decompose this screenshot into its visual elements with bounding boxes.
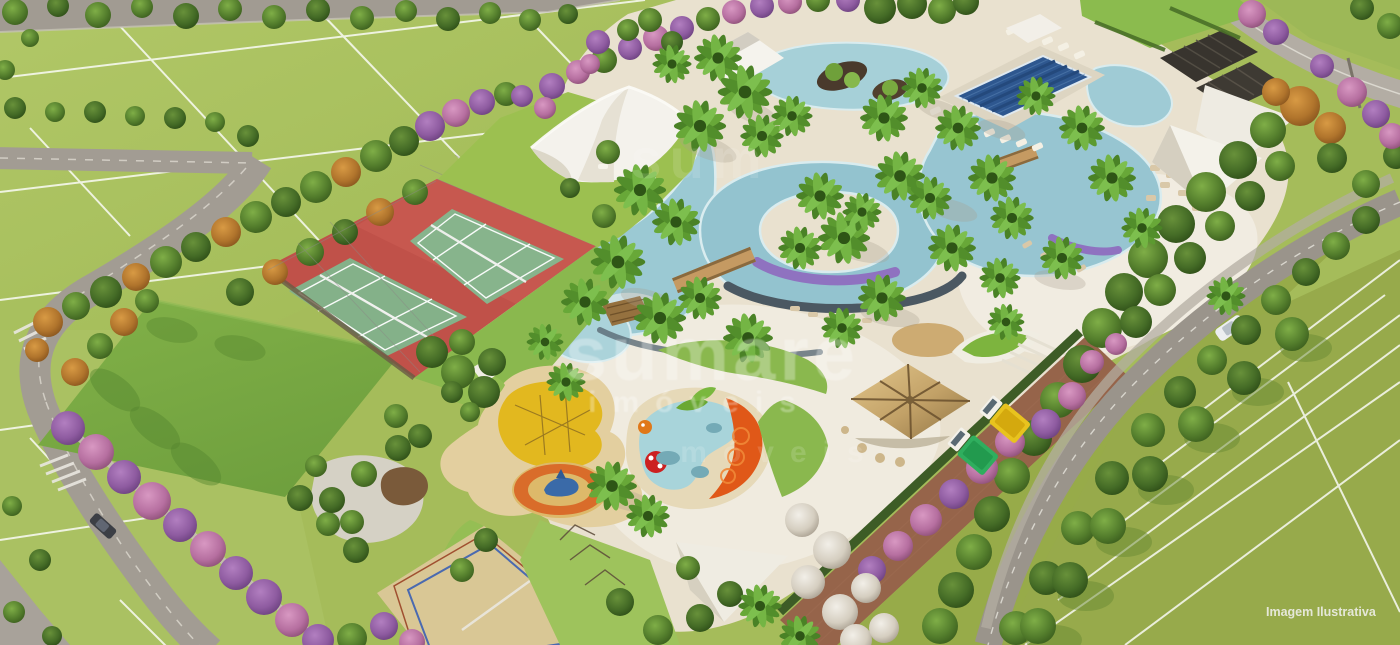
- svg-text:sumare: sumare: [565, 312, 859, 397]
- svg-text:sum: sum: [630, 127, 769, 190]
- svg-text:móveis: móveis: [680, 436, 879, 469]
- svg-text:imóveis: imóveis: [588, 386, 812, 419]
- svg-text:Imagem Ilustrativa: Imagem Ilustrativa: [1266, 605, 1377, 619]
